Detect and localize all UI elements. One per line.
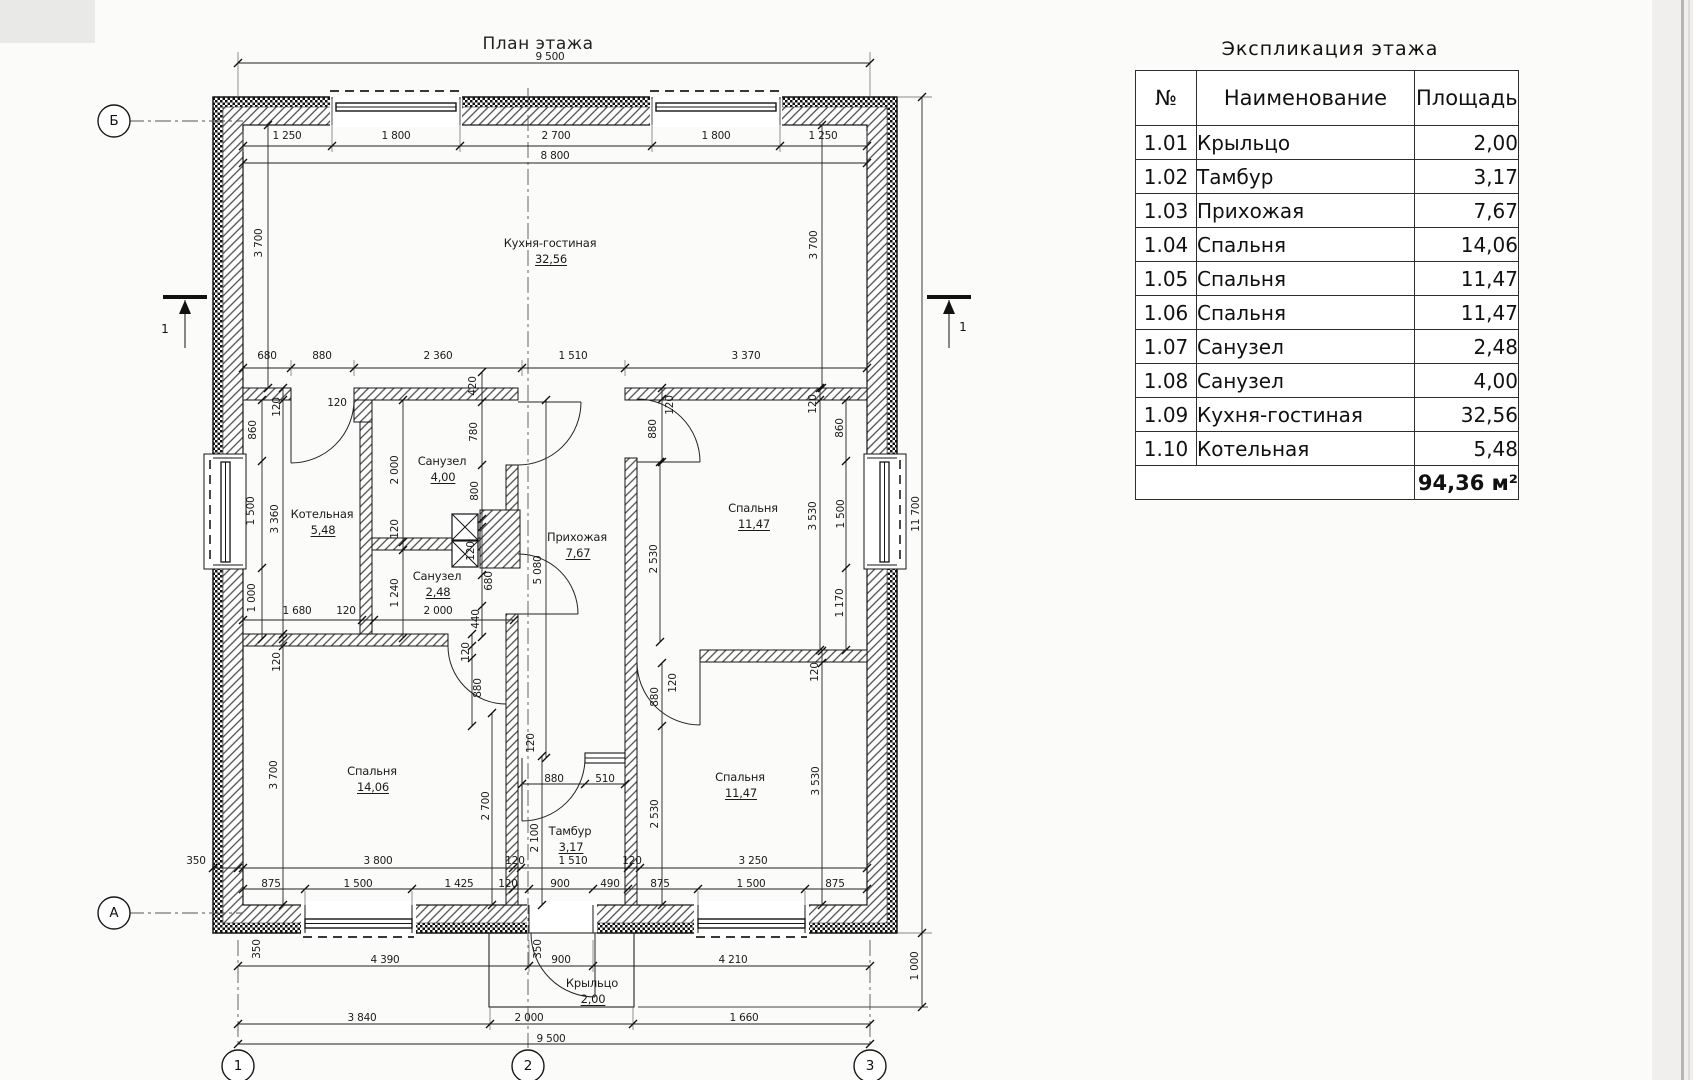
dim-label: 510 <box>595 773 614 785</box>
dim-label: 3 360 <box>269 504 281 533</box>
dim-label: 3 370 <box>731 350 760 362</box>
dim-label: 120 <box>498 878 517 890</box>
room-label: Тамбур <box>549 824 592 838</box>
dim-label: 3 700 <box>253 228 265 257</box>
dim-label: 2 360 <box>423 350 452 362</box>
row-room-name: Спальня <box>1197 228 1415 262</box>
row-room-area: 7,67 <box>1415 194 1519 228</box>
room-label: Санузел <box>418 454 467 468</box>
table-header-row: № Наименование Площадь <box>1136 71 1519 126</box>
dim-label: 3 800 <box>363 855 392 867</box>
dim-label: 1 000 <box>909 951 921 980</box>
dim-label: 120 <box>327 397 346 409</box>
dim-label: 4 390 <box>370 954 399 966</box>
axis-bubble-label: 3 <box>866 1058 875 1074</box>
dim-label: 880 <box>647 419 659 438</box>
axis-bubble-label: Б <box>109 113 118 129</box>
dim-label: 3 250 <box>738 855 767 867</box>
dim-label: 1 500 <box>835 499 847 528</box>
row-room-name: Санузел <box>1197 330 1415 364</box>
dim-label: 1 500 <box>245 496 257 525</box>
dim-label: 120 <box>271 397 283 416</box>
row-room-area: 2,00 <box>1415 126 1519 160</box>
room-area: 2,00 <box>581 992 606 1006</box>
dim-label: 420 <box>467 376 479 395</box>
dim-label: 900 <box>551 954 570 966</box>
row-number: 1.06 <box>1136 296 1197 330</box>
row-number: 1.01 <box>1136 126 1197 160</box>
row-number: 1.07 <box>1136 330 1197 364</box>
dim-label: 880 <box>544 773 563 785</box>
dim-label: 2 700 <box>541 130 570 142</box>
section-mark-left <box>163 297 207 348</box>
dim-label: 120 <box>667 673 679 692</box>
col-header-number: № <box>1136 71 1197 126</box>
dim-label: 350 <box>186 855 205 867</box>
dim-label: 3 700 <box>268 760 280 789</box>
dim-label: 120 <box>809 662 821 681</box>
table-total-row: 94,36 м² <box>1136 466 1519 500</box>
table-row: 1.01Крыльцо2,00 <box>1136 126 1519 160</box>
dim-label: 2 000 <box>514 1012 543 1024</box>
table-row: 1.06Спальня11,47 <box>1136 296 1519 330</box>
dim-label: 1 800 <box>381 130 410 142</box>
axis-bubble-label: 2 <box>524 1058 533 1074</box>
dim-label: 1 510 <box>558 855 587 867</box>
dim-label: 120 <box>807 394 819 413</box>
dim-label: 900 <box>550 878 569 890</box>
room-label: Спальня <box>715 770 765 784</box>
row-room-area: 32,56 <box>1415 398 1519 432</box>
dim-label: 860 <box>834 418 846 437</box>
col-header-name: Наименование <box>1197 71 1415 126</box>
dim-label: 8 800 <box>540 150 569 162</box>
dim-label: 880 <box>649 687 661 706</box>
row-room-area: 5,48 <box>1415 432 1519 466</box>
col-header-area: Площадь <box>1415 71 1519 126</box>
dim-label: 880 <box>472 678 484 697</box>
dim-label: 875 <box>825 878 844 890</box>
dim-label: 2 530 <box>649 799 661 828</box>
dim-label: 1 680 <box>282 605 311 617</box>
dim-label: 120 <box>271 652 283 671</box>
explication-table: № Наименование Площадь 1.01Крыльцо2,001.… <box>1135 70 1519 500</box>
room-area: 32,56 <box>535 252 567 266</box>
dim-label: 120 <box>336 605 355 617</box>
dim-label: 1 660 <box>729 1012 758 1024</box>
table-row: 1.08Санузел4,00 <box>1136 364 1519 398</box>
row-room-area: 4,00 <box>1415 364 1519 398</box>
row-room-name: Санузел <box>1197 364 1415 398</box>
dim-label: 3 840 <box>347 1012 376 1024</box>
dim-label: 1 500 <box>736 878 765 890</box>
dim-label: 9 500 <box>536 1033 565 1045</box>
table-row: 1.10Котельная5,48 <box>1136 432 1519 466</box>
row-room-name: Котельная <box>1197 432 1415 466</box>
dim-label: 9 500 <box>535 51 564 63</box>
dim-label: 350 <box>251 939 263 958</box>
row-number: 1.08 <box>1136 364 1197 398</box>
row-room-name: Крыльцо <box>1197 126 1415 160</box>
table-row: 1.09Кухня-гостиная32,56 <box>1136 398 1519 432</box>
row-room-area: 11,47 <box>1415 262 1519 296</box>
dim-label: 11 700 <box>910 496 922 532</box>
dim-label: 1 250 <box>272 130 301 142</box>
dim-label: 120 <box>389 519 401 538</box>
dim-label: 1 800 <box>701 130 730 142</box>
row-room-area: 11,47 <box>1415 296 1519 330</box>
room-label: Кухня-гостиная <box>504 236 597 250</box>
dim-label: 2 100 <box>529 823 541 852</box>
row-room-area: 2,48 <box>1415 330 1519 364</box>
section-label: 1 <box>959 320 967 334</box>
dim-label: 5 080 <box>532 555 544 584</box>
table-row: 1.02Тамбур3,17 <box>1136 160 1519 194</box>
room-label: Спальня <box>728 501 778 515</box>
dim-label: 3 530 <box>810 766 822 795</box>
dim-label: 2 530 <box>648 544 660 573</box>
dim-label: 860 <box>247 420 259 439</box>
dim-label: 680 <box>483 571 495 590</box>
room-area: 5,48 <box>311 523 336 537</box>
dim-label: 1 510 <box>558 350 587 362</box>
dim-label: 875 <box>650 878 669 890</box>
dim-label: 120 <box>664 395 676 414</box>
dim-label: 120 <box>465 541 477 560</box>
table-row: 1.04Спальня14,06 <box>1136 228 1519 262</box>
dim-label: 120 <box>460 642 472 661</box>
row-room-area: 3,17 <box>1415 160 1519 194</box>
room-area: 11,47 <box>738 517 770 531</box>
section-label: 1 <box>161 322 169 336</box>
dim-label: 875 <box>261 878 280 890</box>
dim-label: 680 <box>257 350 276 362</box>
dim-label: 120 <box>505 855 524 867</box>
row-room-name: Спальня <box>1197 262 1415 296</box>
dim-label: 780 <box>468 422 480 441</box>
dim-label: 2 700 <box>480 791 492 820</box>
row-room-name: Спальня <box>1197 296 1415 330</box>
room-label: Котельная <box>291 507 354 521</box>
total-empty-cell <box>1136 466 1415 500</box>
dim-label: 1 425 <box>444 878 473 890</box>
dim-label: 1 000 <box>246 583 258 612</box>
row-number: 1.03 <box>1136 194 1197 228</box>
row-room-area: 14,06 <box>1415 228 1519 262</box>
dim-label: 440 <box>470 609 482 628</box>
dim-label: 490 <box>600 878 619 890</box>
room-label: Крыльцо <box>566 976 618 990</box>
room-area: 3,17 <box>559 840 584 854</box>
table-row: 1.03Прихожая7,67 <box>1136 194 1519 228</box>
row-number: 1.09 <box>1136 398 1197 432</box>
dim-label: 1 170 <box>834 588 846 617</box>
room-label: Спальня <box>347 764 397 778</box>
room-label: Прихожая <box>547 530 607 544</box>
dim-label: 2 000 <box>389 455 401 484</box>
table-row: 1.05Спальня11,47 <box>1136 262 1519 296</box>
dim-label: 350 <box>532 939 544 958</box>
room-label: Санузел <box>413 569 462 583</box>
room-area: 2,48 <box>426 585 451 599</box>
dim-label: 3 530 <box>807 501 819 530</box>
dim-label: 1 500 <box>343 878 372 890</box>
row-number: 1.02 <box>1136 160 1197 194</box>
dim-label: 1 250 <box>808 130 837 142</box>
dim-label: 4 210 <box>718 954 747 966</box>
row-room-name: Кухня-гостиная <box>1197 398 1415 432</box>
dim-label: 2 000 <box>423 605 452 617</box>
axis-bubble-label: А <box>109 905 118 921</box>
table-row: 1.07Санузел2,48 <box>1136 330 1519 364</box>
dim-label: 3 700 <box>808 230 820 259</box>
axis-bubble-label: 1 <box>234 1058 243 1074</box>
dim-label: 1 240 <box>389 578 401 607</box>
row-room-name: Тамбур <box>1197 160 1415 194</box>
dim-label: 120 <box>622 855 641 867</box>
dim-label: 880 <box>312 350 331 362</box>
dim-label: 120 <box>525 733 537 752</box>
row-room-name: Прихожая <box>1197 194 1415 228</box>
room-area: 4,00 <box>431 470 456 484</box>
dim-label: 800 <box>469 481 481 500</box>
total-area-value: 94,36 м² <box>1415 466 1519 500</box>
table-title: Экспликация этажа <box>1155 38 1505 60</box>
row-number: 1.05 <box>1136 262 1197 296</box>
row-number: 1.04 <box>1136 228 1197 262</box>
room-area: 7,67 <box>566 546 591 560</box>
room-area: 11,47 <box>725 786 757 800</box>
room-area: 14,06 <box>357 780 389 794</box>
row-number: 1.10 <box>1136 432 1197 466</box>
